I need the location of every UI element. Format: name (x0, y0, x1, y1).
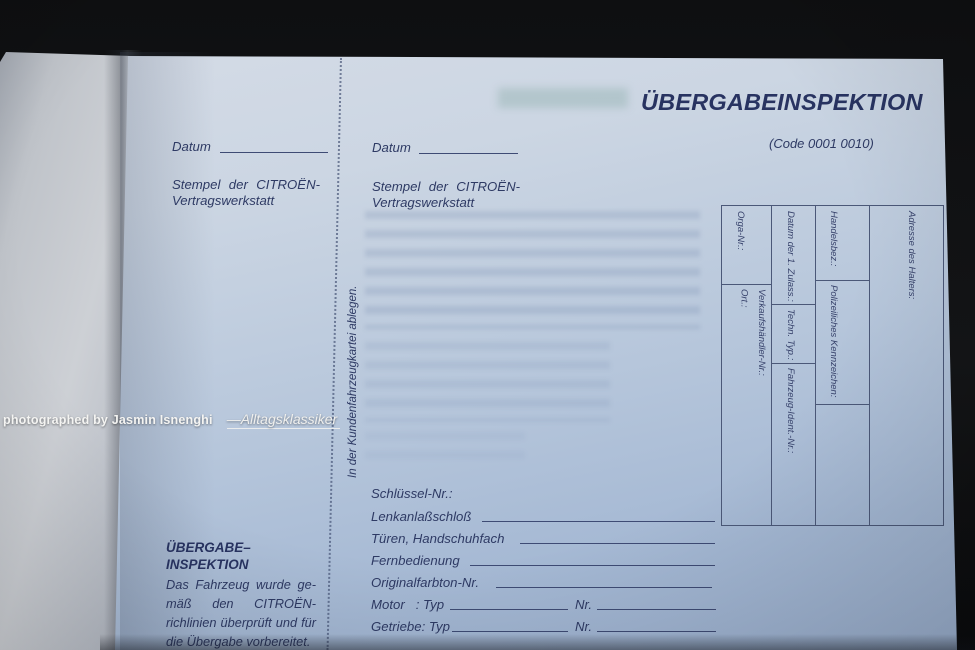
fahrzeug-ident-nr-label: Fahrzeug-Ident.-Nr.: (784, 368, 795, 453)
table-vline-2 (815, 206, 816, 525)
table-hline-techn (771, 363, 816, 364)
motor-nr-label: Nr. (575, 597, 592, 612)
dealer-stamp-note-center-line2: Vertragswerkstatt (372, 195, 474, 210)
key-row-originalfarbton-fill-line (496, 574, 712, 588)
vehicle-data-table: Orga-Nr.: Verkaufshändler-Nr.: Ort.: Dat… (721, 205, 944, 526)
table-vline-3 (869, 206, 870, 525)
polizeiliches-kennzeichen-label: Polizeiliches Kennzeichen: (827, 285, 838, 397)
dealer-stamp-note-left-line1: Stempel der CITROËN- (172, 177, 320, 192)
techn-typ-label: Techn. Typ.: (784, 309, 795, 360)
table-hline-handelsbez (815, 280, 870, 281)
motor-nr-fill-line (597, 596, 716, 610)
dealer-stamp-note-center-line1: Stempel der CITROËN- (372, 179, 520, 194)
watermark: photographed by Jasmin Isnenghi —Alltags… (3, 411, 340, 429)
orga-nr-label: Orga-Nr.: (734, 211, 745, 250)
adresse-des-halters-label: Adresse des Halters: (905, 211, 916, 299)
table-hline-orga (722, 284, 771, 285)
handover-inspection-body-line1: Das Fahrzeug wurde ge- (166, 575, 316, 594)
table-hline-zulass (771, 304, 816, 305)
key-row-tueren-fill-line (520, 530, 715, 544)
datum-fill-line-center (419, 140, 518, 154)
key-row-lenkanlassschloss-fill-line (482, 508, 715, 522)
dealer-cell: Verkaufshändler-Nr.: Ort.: (722, 289, 766, 376)
photo-of-service-booklet: ÜBERGABEINSPEKTION (Code 0001 0010) Datu… (0, 0, 975, 650)
getriebe-typ-fill-line (452, 618, 568, 632)
showthrough-heading-smudge (498, 88, 628, 108)
datum-label-center: Datum (372, 140, 411, 155)
handover-inspection-body-line3: richlinien überprüft und für (166, 613, 316, 632)
handover-inspection-heading-line2: INSPEKTION (166, 556, 249, 573)
handelsbez-label: Handelsbez.: (827, 211, 838, 266)
getriebe-nr-fill-line (597, 618, 716, 632)
ort-label: Ort.: (738, 289, 748, 376)
schluessel-nr-heading: Schlüssel-Nr.: (371, 486, 453, 501)
page-bottom-shadow (100, 634, 975, 650)
page-title: ÜBERGABEINSPEKTION (641, 89, 923, 116)
verkaufshaendler-nr-label: Verkaufshändler-Nr.: (756, 289, 766, 376)
handover-inspection-heading-line1: ÜBERGABE– (166, 539, 251, 556)
datum-fill-line-left (220, 139, 328, 153)
handover-inspection-body-line2: mäß den CITROËN- (166, 594, 316, 613)
datum-erste-zulassung-label: Datum der 1. Zulass.: (784, 211, 795, 302)
brand-logo-text: —Alltagsklassiker (227, 411, 340, 429)
getriebe-nr-label: Nr. (575, 619, 592, 634)
key-row-tueren-label: Türen, Handschuhfach (371, 531, 504, 546)
photographer-credit: photographed by Jasmin Isnenghi (3, 413, 213, 427)
table-vline-1 (771, 206, 772, 525)
motor-typ-fill-line (450, 596, 568, 610)
filing-note-vertical: In der Kundenfahrzeugkartei ablegen. (347, 286, 359, 478)
code-label: (Code 0001 0010) (769, 136, 874, 151)
getriebe-typ-label: Getriebe: Typ (371, 619, 450, 634)
key-row-fernbedienung-fill-line (470, 552, 715, 566)
motor-typ-label: Motor : Typ (371, 597, 444, 612)
table-hline-kennzeichen (815, 404, 870, 405)
dealer-stamp-note-left-line2: Vertragswerkstatt (172, 193, 274, 208)
datum-label-left: Datum (172, 139, 211, 154)
key-row-lenkanlassschloss-label: Lenkanlaßschloß (371, 509, 471, 524)
key-row-fernbedienung-label: Fernbedienung (371, 553, 460, 568)
key-row-originalfarbton-label: Originalfarbton-Nr. (371, 575, 479, 590)
